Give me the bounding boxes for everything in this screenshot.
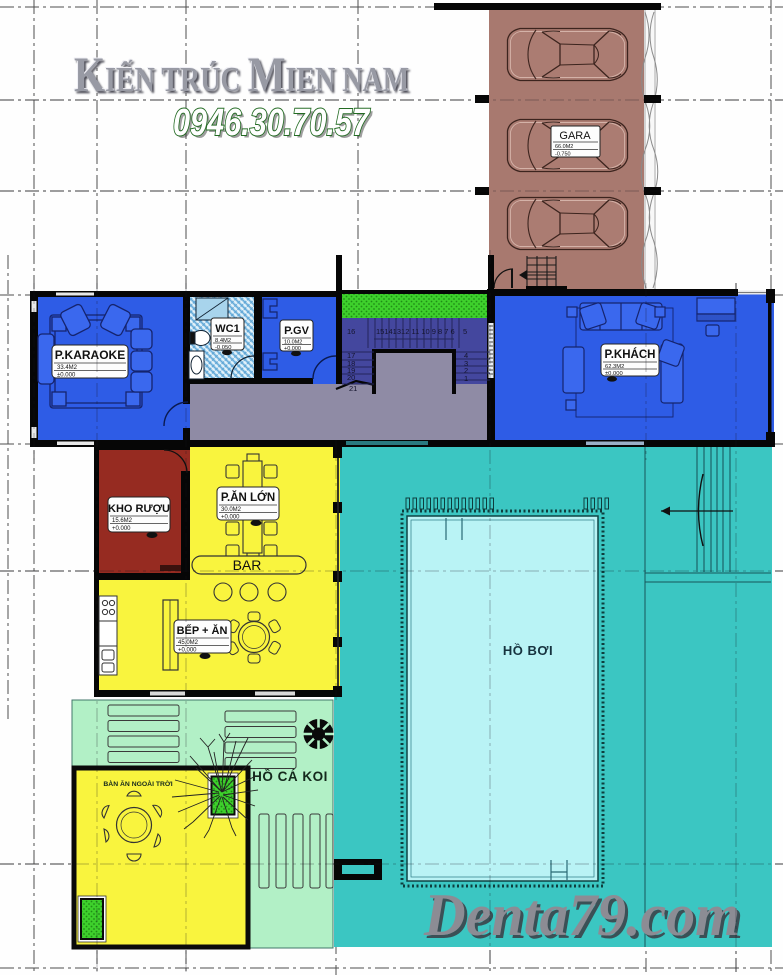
svg-text:66.0M2: 66.0M2 [555, 144, 573, 150]
svg-text:P.ĂN LỚN: P.ĂN LỚN [221, 491, 275, 504]
svg-text:BẾP + ĂN: BẾP + ĂN [177, 624, 228, 637]
svg-text:P.KHÁCH: P.KHÁCH [605, 348, 656, 361]
svg-text:16: 16 [347, 327, 355, 336]
svg-text:HỒ CÁ KOI: HỒ CÁ KOI [252, 769, 328, 784]
svg-text:Denta79.com: Denta79.com [423, 882, 740, 948]
svg-text:45.0M2: 45.0M2 [178, 640, 199, 646]
svg-text:P.KARAOKE: P.KARAOKE [55, 348, 125, 362]
svg-text:BÀN ĂN NGOÀI TRỜI: BÀN ĂN NGOÀI TRỜI [103, 779, 172, 788]
svg-text:+0.000: +0.000 [284, 346, 301, 352]
svg-text:30.0M2: 30.0M2 [221, 507, 242, 513]
svg-text:P.GV: P.GV [284, 325, 310, 337]
svg-text:KHO RƯỢU: KHO RƯỢU [108, 503, 170, 515]
svg-text:GARA: GARA [559, 130, 591, 142]
svg-text:21: 21 [349, 384, 357, 393]
svg-text:15141312 11 10 9 8 7 6: 15141312 11 10 9 8 7 6 [376, 327, 455, 336]
svg-text:1: 1 [464, 374, 468, 383]
svg-text:+0.000: +0.000 [178, 648, 197, 654]
svg-text:±0.000: ±0.000 [57, 373, 76, 379]
svg-text:HỒ BƠI: HỒ BƠI [503, 643, 553, 658]
svg-text:20: 20 [347, 373, 355, 382]
svg-text:+0.000: +0.000 [112, 526, 131, 532]
svg-text:5: 5 [463, 327, 467, 336]
svg-text:+0.000: +0.000 [221, 515, 240, 521]
svg-text:WC1: WC1 [215, 323, 239, 335]
svg-text:0946.30.70.57: 0946.30.70.57 [173, 102, 371, 144]
svg-text:10.0M2: 10.0M2 [284, 340, 302, 346]
svg-text:33.4M2: 33.4M2 [57, 365, 78, 371]
svg-text:-0.750: -0.750 [555, 152, 571, 158]
svg-text:15.6M2: 15.6M2 [112, 518, 133, 524]
svg-text:62.3M2: 62.3M2 [605, 364, 624, 370]
svg-text:±0.000: ±0.000 [605, 371, 623, 377]
svg-text:-0.050: -0.050 [215, 345, 231, 351]
svg-text:8.4M2: 8.4M2 [215, 338, 231, 344]
